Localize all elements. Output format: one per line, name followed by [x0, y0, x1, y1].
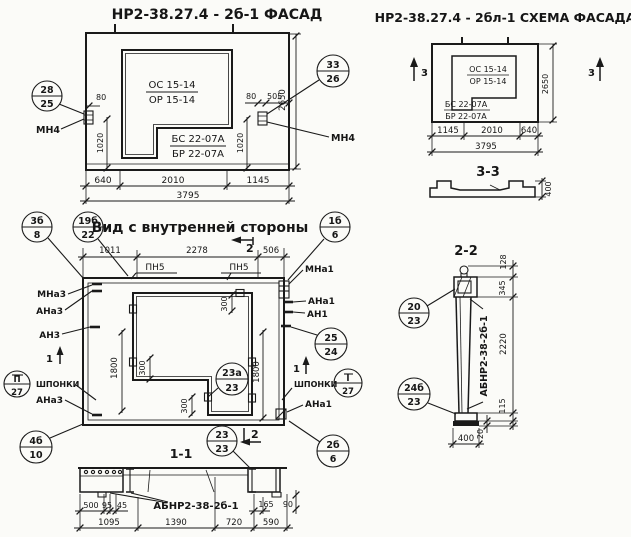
svg-text:3б: 3б — [30, 216, 44, 227]
balloon-23a-23: 23а 23 — [208, 363, 248, 397]
inner-right-labels: МНа1 АНа1 АН1 25 24 1 ШПОНКИ — [276, 265, 362, 467]
facade-view: НР2-38.27.4 - 2б-1 ФАСАД ОС 15-14 ОР 15-… — [32, 7, 355, 204]
scheme-dims-bottom: 1145 2010 640 3795 — [427, 123, 543, 156]
svg-text:4б: 4б — [29, 436, 43, 447]
svg-text:1б: 1б — [328, 216, 342, 227]
svg-text:БС 22-07А: БС 22-07А — [172, 134, 225, 145]
label-keys-left: ШПОНКИ — [36, 380, 79, 389]
label-keys-right: ШПОНКИ — [294, 380, 337, 389]
section-1-1: 1-1 23 23 АБНР2-38-2б-1 — [74, 426, 299, 531]
svg-text:3795: 3795 — [177, 191, 200, 201]
svg-text:6: 6 — [332, 230, 339, 241]
svg-text:28: 28 — [40, 85, 54, 96]
svg-text:95: 95 — [102, 501, 112, 510]
balloon-25-24: 25 24 — [281, 326, 347, 360]
section-1-1-label: АБНР2-38-2б-1 — [110, 493, 239, 512]
svg-text:400: 400 — [458, 434, 474, 444]
svg-text:3: 3 — [588, 68, 595, 79]
svg-text:ПН5: ПН5 — [229, 263, 248, 273]
svg-text:6: 6 — [330, 454, 337, 465]
label-ana3: АНа3 — [36, 307, 63, 317]
svg-text:506: 506 — [263, 246, 279, 256]
svg-text:1: 1 — [46, 354, 53, 365]
section-2-2-title: 2-2 — [454, 244, 478, 259]
svg-text:25: 25 — [324, 333, 337, 344]
svg-text:2010: 2010 — [162, 176, 185, 186]
svg-text:128: 128 — [499, 254, 508, 269]
facade-block-mark: БС 22-07А БР 22-07А — [170, 134, 226, 160]
svg-text:90: 90 — [283, 500, 293, 509]
svg-text:80: 80 — [96, 93, 106, 102]
svg-text:23: 23 — [225, 383, 238, 394]
svg-text:23: 23 — [215, 430, 228, 441]
label-an3: АН3 — [39, 331, 60, 341]
balloon-24b-23: 24б 23 — [398, 378, 456, 414]
section-3-3-title: 3-3 — [476, 165, 500, 180]
svg-text:300: 300 — [180, 398, 189, 413]
svg-text:26: 26 — [326, 74, 340, 85]
svg-text:1800: 1800 — [252, 361, 262, 383]
svg-text:27: 27 — [342, 387, 354, 397]
inner-view: 3б 8 19б 22 Вид с внутренней стороны 1б … — [4, 212, 362, 467]
anchor-label-mn4-left: МН4 — [36, 125, 60, 136]
svg-text:1390: 1390 — [165, 518, 187, 528]
svg-text:2278: 2278 — [186, 246, 208, 256]
svg-text:20: 20 — [476, 429, 485, 439]
label-ana3-bottom: АНа3 — [36, 396, 63, 406]
balloon-keys-left: П 27 — [4, 371, 30, 398]
svg-text:1145: 1145 — [437, 126, 459, 136]
section-1-1-title: 1-1 — [170, 446, 193, 461]
svg-text:20: 20 — [407, 302, 421, 313]
svg-text:300: 300 — [138, 360, 147, 375]
svg-text:23: 23 — [407, 316, 420, 327]
svg-text:33: 33 — [326, 60, 339, 71]
svg-text:1095: 1095 — [98, 518, 120, 528]
svg-text:1145: 1145 — [247, 176, 270, 186]
svg-text:45: 45 — [117, 501, 127, 510]
svg-text:300: 300 — [220, 296, 229, 311]
svg-text:ОС 15-14: ОС 15-14 — [469, 65, 507, 74]
svg-text:ОР 15-14: ОР 15-14 — [470, 77, 507, 86]
svg-text:115: 115 — [498, 398, 507, 413]
facade-anchor-right — [258, 112, 267, 125]
facade-window-mark: ОС 15-14 ОР 15-14 — [146, 80, 198, 106]
drawing-sheet: НР2-38.27.4 - 2б-1 ФАСАД ОС 15-14 ОР 15-… — [0, 0, 631, 537]
balloon-4b-10: 4б 10 — [20, 424, 83, 463]
label-mna1: МНа1 — [305, 265, 334, 275]
inner-dims-top: 1011 2278 506 — [78, 246, 290, 277]
scheme-dim-2650: 2650 — [538, 43, 557, 124]
section-cut-1-right: 1 — [293, 356, 310, 375]
facade-title: НР2-38.27.4 - 2б-1 ФАСАД — [112, 7, 323, 23]
svg-text:П: П — [13, 375, 20, 385]
scheme-view: НР2-38.27.4 - 2бл-1 СХЕМА ФАСАДА ОС 15-1… — [375, 10, 631, 156]
svg-text:500: 500 — [83, 501, 98, 510]
svg-text:БС 22-07А: БС 22-07А — [445, 100, 488, 109]
section-cut-2-bottom: 2 — [240, 428, 261, 446]
svg-text:2010: 2010 — [481, 126, 503, 136]
svg-text:I: I — [346, 374, 349, 384]
svg-text:2: 2 — [246, 242, 254, 255]
svg-text:2650: 2650 — [541, 74, 550, 94]
technical-drawing: НР2-38.27.4 - 2б-1 ФАСАД ОС 15-14 ОР 15-… — [0, 0, 631, 537]
scheme-window-mark: ОС 15-14 ОР 15-14 — [467, 65, 509, 86]
section-3-3-dim-400: 400 — [535, 178, 553, 201]
svg-text:345: 345 — [498, 280, 507, 295]
balloon-2b-6: 2б 6 — [289, 421, 349, 467]
section-3-3-profile — [430, 181, 535, 197]
section-2-2: 2-2 АБНР2-38-2б-1 128 345 2220 115 — [398, 244, 518, 448]
svg-text:2: 2 — [251, 428, 259, 441]
svg-text:24: 24 — [324, 347, 338, 358]
balloon-28-25: 28 25 — [32, 81, 84, 114]
label-ana1: АНа1 — [308, 297, 335, 307]
facade-lifting-ticks — [115, 24, 233, 33]
facade-dims-bottom: 640 2010 1145 3795 — [80, 171, 295, 204]
svg-text:8: 8 — [34, 230, 41, 241]
inner-view-title: Вид с внутренней стороны — [92, 220, 309, 236]
section-3-3: 3-3 400 — [430, 165, 553, 200]
section-cut-3-left: 3 — [410, 57, 428, 81]
svg-text:25: 25 — [40, 99, 53, 110]
inner-dims-300: 300 300 300 — [138, 292, 235, 418]
balloon-keys-right: I 27 — [334, 369, 362, 397]
svg-text:590: 590 — [263, 518, 279, 528]
label-ana1-bottom: АНа1 — [305, 400, 332, 410]
svg-text:1: 1 — [293, 364, 300, 375]
svg-text:165: 165 — [258, 500, 273, 509]
anchor-label-mn4-right: МН4 — [331, 133, 355, 144]
inner-left-labels: МНа3 АНа3 АН3 1 П 27 ШПОНКИ АНа3 4б 10 — [4, 284, 102, 463]
svg-text:БР 22-07А: БР 22-07А — [172, 149, 224, 160]
svg-text:640: 640 — [521, 126, 537, 136]
svg-text:24б: 24б — [404, 383, 424, 394]
svg-text:2220: 2220 — [499, 333, 509, 355]
label-an1: АН1 — [307, 310, 328, 320]
svg-text:2б: 2б — [326, 440, 340, 451]
svg-text:ОР 15-14: ОР 15-14 — [149, 95, 195, 106]
svg-text:2650: 2650 — [278, 89, 288, 111]
svg-text:23: 23 — [407, 397, 420, 408]
svg-text:23а: 23а — [222, 368, 242, 379]
section-cut-3-right: 3 — [588, 57, 604, 81]
svg-text:1011: 1011 — [99, 246, 121, 256]
pn5-label-left: ПН5 — [131, 263, 177, 279]
section-1-1-body — [78, 468, 287, 497]
svg-text:3795: 3795 — [475, 142, 497, 152]
svg-text:23: 23 — [215, 444, 228, 455]
balloon-20-23: 20 23 — [399, 289, 455, 328]
scheme-lifting-ticks — [462, 37, 508, 44]
svg-text:80: 80 — [246, 92, 256, 101]
svg-text:АБНР2-38-2б-1: АБНР2-38-2б-1 — [479, 315, 490, 396]
svg-text:1800: 1800 — [110, 357, 120, 379]
svg-text:720: 720 — [226, 518, 242, 528]
svg-text:БР 22-07А: БР 22-07А — [445, 112, 487, 121]
svg-text:1020: 1020 — [236, 133, 245, 153]
scheme-title: НР2-38.27.4 - 2бл-1 СХЕМА ФАСАДА — [375, 10, 631, 25]
section-cut-1-left: 1 — [46, 346, 64, 365]
svg-text:640: 640 — [94, 176, 111, 186]
svg-text:400: 400 — [544, 181, 553, 196]
svg-text:ОС 15-14: ОС 15-14 — [148, 80, 195, 91]
svg-text:3: 3 — [421, 68, 428, 79]
section-2-2-body — [453, 266, 479, 426]
label-mna3: МНа3 — [37, 290, 66, 300]
svg-text:27: 27 — [11, 388, 23, 398]
svg-text:1020: 1020 — [96, 133, 105, 153]
section-cut-2-top: 2 — [231, 237, 254, 256]
svg-text:ПН5: ПН5 — [145, 263, 164, 273]
svg-text:10: 10 — [29, 450, 43, 461]
